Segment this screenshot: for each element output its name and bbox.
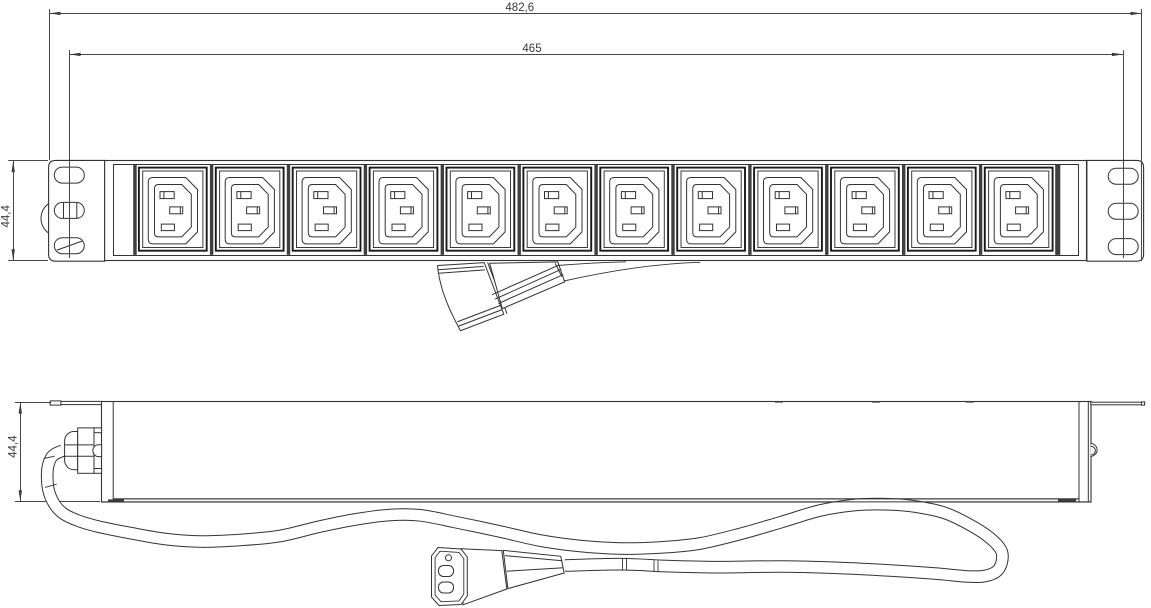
svg-text:465: 465 [522, 43, 541, 55]
svg-text:44,4: 44,4 [1, 205, 13, 228]
svg-text:482,6: 482,6 [505, 2, 534, 14]
svg-text:44,4: 44,4 [8, 435, 20, 458]
